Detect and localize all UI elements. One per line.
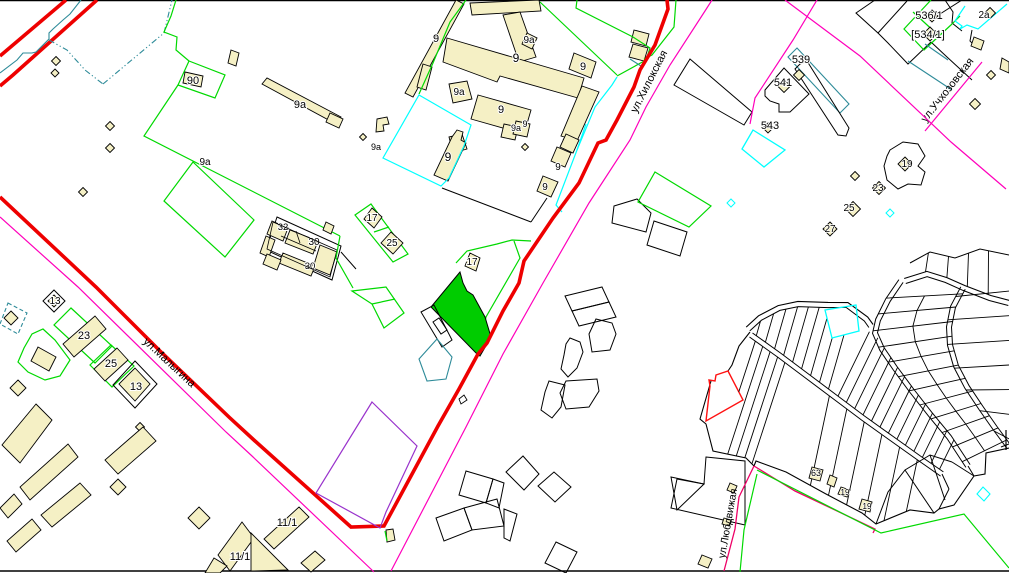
svg-text:9: 9: [555, 162, 561, 173]
svg-text:9: 9: [522, 119, 527, 129]
svg-text:9: 9: [433, 33, 439, 45]
svg-text:23: 23: [872, 183, 884, 194]
svg-text:32: 32: [278, 222, 289, 233]
svg-text:19: 19: [901, 159, 913, 170]
svg-text:11/1: 11/1: [230, 551, 251, 563]
svg-text:2а: 2а: [978, 10, 990, 21]
svg-text:17: 17: [366, 213, 378, 224]
svg-text:25: 25: [386, 238, 398, 249]
svg-text:23: 23: [78, 330, 90, 342]
svg-text:19: 19: [863, 502, 872, 511]
svg-text:9: 9: [445, 150, 452, 164]
svg-text:536/1: 536/1: [915, 10, 943, 22]
svg-text:13: 13: [130, 381, 142, 393]
svg-text:19: 19: [841, 488, 850, 497]
svg-text:90: 90: [187, 75, 199, 87]
svg-text:9: 9: [580, 61, 586, 73]
svg-text:25: 25: [843, 203, 855, 214]
svg-text:539: 539: [792, 54, 810, 66]
svg-text:9а: 9а: [371, 142, 381, 152]
svg-text:[534/1]: [534/1]: [911, 29, 945, 41]
svg-text:17: 17: [466, 257, 478, 268]
svg-text:9а: 9а: [511, 123, 521, 133]
svg-text:25: 25: [105, 358, 117, 370]
svg-text:543: 543: [761, 120, 779, 132]
svg-text:13: 13: [49, 296, 61, 307]
svg-text:9: 9: [498, 104, 504, 116]
svg-text:9а: 9а: [523, 35, 535, 46]
svg-text:11/1: 11/1: [277, 517, 298, 529]
svg-text:27: 27: [824, 224, 836, 235]
svg-text:9а: 9а: [199, 157, 211, 168]
svg-text:9: 9: [513, 51, 520, 65]
svg-text:9: 9: [542, 182, 548, 193]
svg-text:63: 63: [811, 468, 821, 478]
svg-text:9а: 9а: [294, 99, 307, 111]
svg-text:9а: 9а: [453, 87, 465, 98]
svg-text:541: 541: [774, 77, 792, 89]
